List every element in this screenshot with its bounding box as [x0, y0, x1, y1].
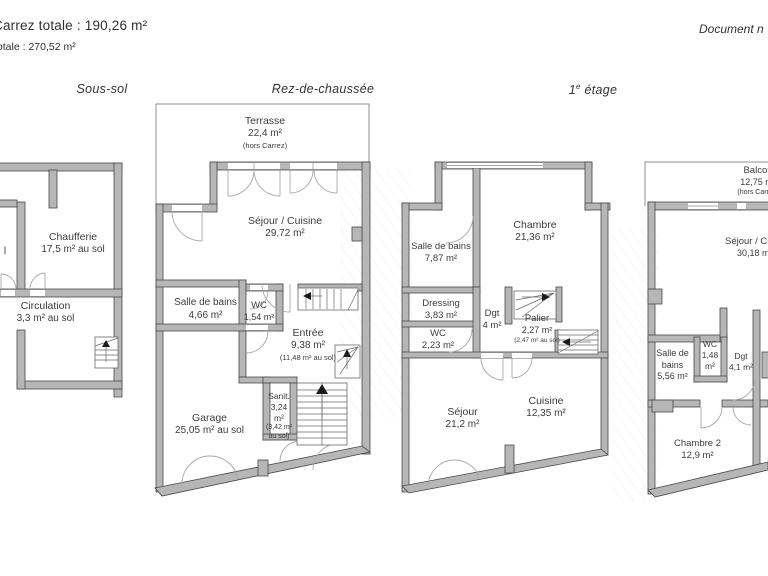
- staircase: [95, 337, 118, 368]
- room-label-entree: Entrée 9,38 m² (11,48 m² au sol): [258, 327, 358, 363]
- room-label-wc-e1: WC 2,23 m²: [407, 328, 469, 352]
- room-label-cut-fragment: l: [0, 246, 10, 259]
- document-note: Document n: [699, 22, 768, 36]
- room-label-chambre: Chambre 21,36 m²: [480, 219, 590, 245]
- floorplan-sous-sol-drawing: [0, 140, 165, 435]
- room-label-palier: Palier 2,27 m² (2,47 m² au sol): [506, 313, 568, 345]
- room-label-salle-de-bains: Salle de bains 4,66 m²: [158, 297, 253, 323]
- floor-title-sous-sol: Sous-sol: [52, 82, 152, 96]
- room-label-chaufferie: Chaufferie 17,5 m² au sol: [23, 231, 123, 257]
- room-label-wc: WC 1,54 m²: [241, 300, 277, 324]
- floor-title-rdc: Rez-de-chaussée: [258, 82, 388, 96]
- surface-total: totale : 270,52 m²: [0, 41, 76, 53]
- room-label-salle-de-bains-e2: Salle de bains 5,56 m²: [650, 348, 695, 383]
- room-label-sejour-cuisine-e2: Séjour / Cu 30,18 m: [725, 236, 768, 260]
- room-label-sanitaire: Sanit. 3,24 m² (3,42 m² au sol): [262, 391, 296, 442]
- room-label-dgt-e1: Dgt 4 m²: [474, 308, 510, 332]
- staircases: [297, 288, 360, 445]
- room-label-cuisine: Cuisine 12,35 m²: [510, 395, 582, 421]
- etage1-superscript: e: [576, 82, 581, 91]
- room-label-garage: Garage 25,05 m² au sol: [152, 412, 267, 438]
- room-label-wc-e2: WC 1,48 m²: [697, 339, 723, 372]
- room-label-sejour-cuisine: Séjour / Cuisine 29,72 m²: [225, 215, 345, 241]
- room-label-sejour-e1: Séjour 21,2 m²: [425, 406, 500, 432]
- room-label-circulation: Circulation 3,3 m² au sol: [0, 300, 103, 326]
- floorplan-document: Carrez totale : 190,26 m² totale : 270,5…: [0, 0, 768, 576]
- room-label-dressing: Dressing 3,83 m²: [407, 298, 475, 322]
- room-label-salle-de-bains-e1: Salle de bains 7,87 m²: [405, 241, 477, 265]
- room-label-dgt-e2: Dgt 4,1 m²: [726, 351, 756, 373]
- surface-carrez-total: Carrez totale : 190,26 m²: [0, 18, 147, 33]
- room-label-chambre2: Chambre 2 12,9 m²: [650, 438, 745, 462]
- room-label-balcon: Balcon 12,75 m² (hors Carrez): [703, 165, 768, 198]
- room-label-terrasse: Terrasse 22,4 m² (hors Carrez): [215, 115, 315, 151]
